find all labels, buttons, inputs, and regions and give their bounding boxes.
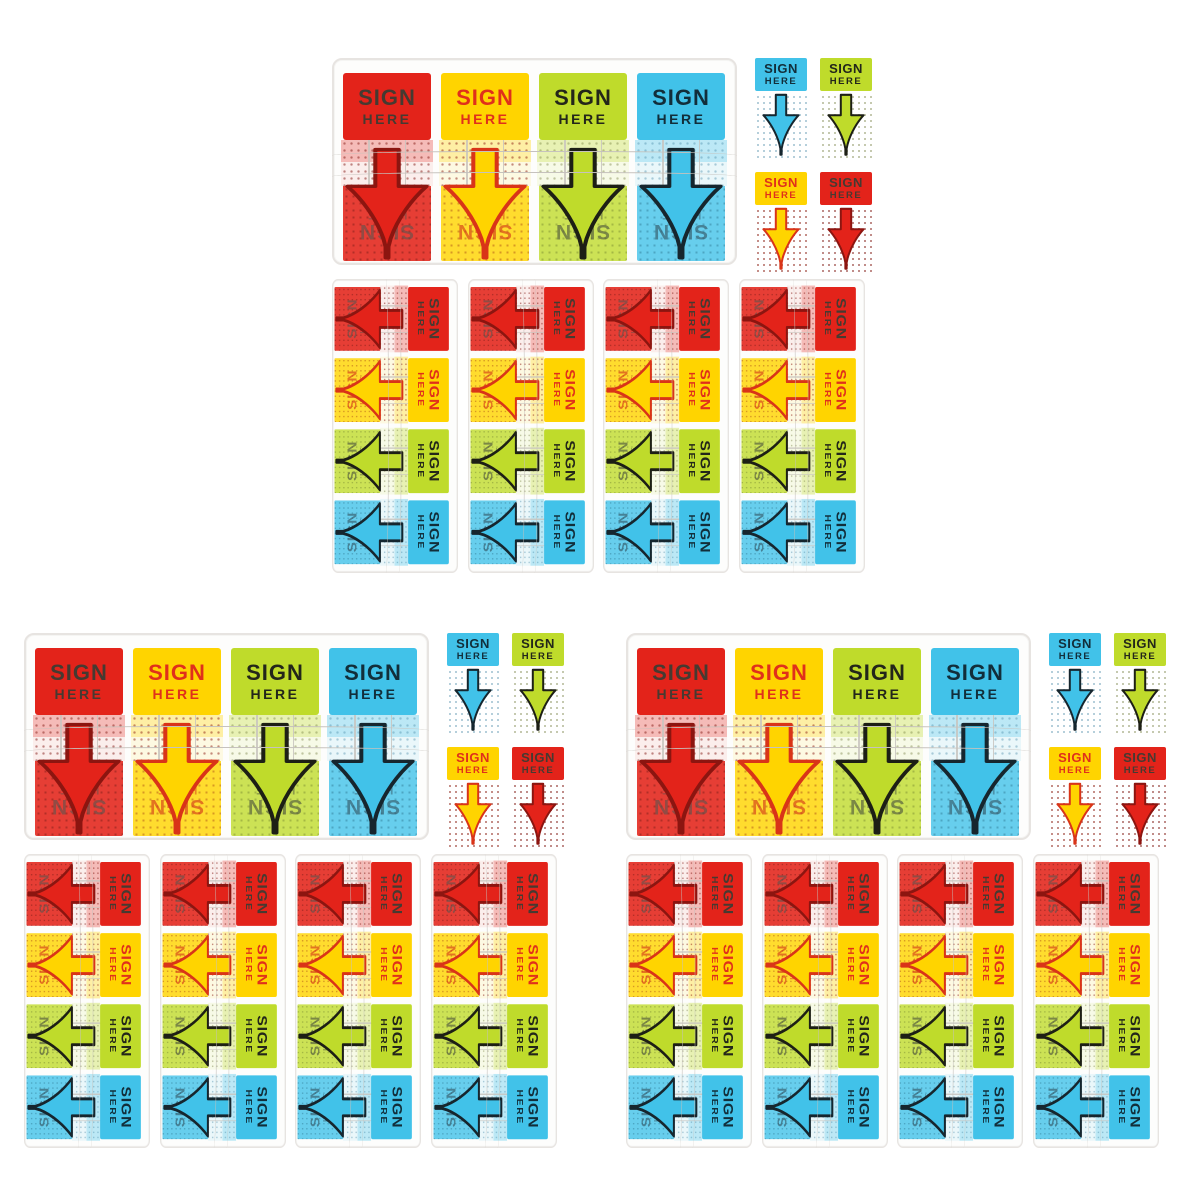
sign-here-tab: SIGN HERE SIGN HERE	[296, 861, 420, 928]
tab-label-line1: SIGN	[992, 873, 1005, 915]
sample-flag-adhesive	[1049, 783, 1101, 847]
arrow-down-icon	[471, 357, 539, 422]
tab-label-line1: SIGN	[563, 511, 576, 553]
rotated-dispenser: SIGN HERE SIGN HERE SIGN HERE SIGN HERE	[603, 279, 729, 573]
sign-here-tab: SIGN HERE SIGN HERE	[627, 861, 751, 928]
tab-head: SIGN HERE	[544, 429, 585, 493]
arrow-down-icon	[342, 148, 432, 260]
tab-label-line1: SIGN	[255, 944, 268, 986]
sample-flag: SIGN HERE	[755, 172, 807, 272]
tab-head: SIGN HERE	[408, 500, 449, 564]
flag-dispenser-tray: SIGN HERE SIGN HERE SIGN HERE SIGN HERE	[332, 58, 737, 265]
rotated-dispenser: SIGN HERE SIGN HERE SIGN HERE SIGN HERE	[24, 854, 150, 1148]
tab-label-line1: SIGN	[721, 1015, 734, 1057]
tab-label-line1: SIGN	[427, 511, 440, 553]
dispenser-area: SIGN HERE SIGN HERE SIGN HERE SIGN HERE	[24, 633, 429, 840]
tab-label-line2: HERE	[109, 1018, 118, 1054]
tab-head: SIGN HERE	[441, 73, 529, 140]
tab-label-line1: SIGN	[119, 1015, 132, 1057]
tab-head: SIGN HERE	[236, 1075, 277, 1139]
sample-flag-adhesive	[447, 783, 499, 847]
dispenser-tabs-row: SIGN HERE SIGN HERE SIGN HERE SIGN HERE	[341, 60, 727, 263]
strips-row: SIGN HERE SIGN HERE SIGN HERE SIGN HERE	[626, 854, 1164, 1148]
tab-head: SIGN HERE	[100, 862, 141, 926]
sign-here-tab: SIGN HERE SIGN HERE	[604, 428, 728, 495]
tab-label-line1: SIGN	[246, 662, 304, 684]
tab-label-line1: SIGN	[652, 662, 710, 684]
tab-head: SIGN HERE	[35, 648, 123, 715]
tab-head: SIGN HERE	[408, 358, 449, 422]
tab-label-line2: HERE	[1118, 947, 1127, 983]
tab-label-line1: SIGN	[992, 1015, 1005, 1057]
sign-here-tab: SIGN HERE SIGN HERE	[469, 428, 593, 495]
tab-head: SIGN HERE	[236, 933, 277, 997]
sign-here-tab: SIGN HERE SIGN HERE	[831, 635, 923, 838]
arrow-down-icon	[1120, 669, 1160, 731]
arrow-down-icon	[434, 1075, 502, 1140]
sample-flag-label-line2: HERE	[522, 652, 554, 662]
rotated-dispenser: SIGN HERE SIGN HERE SIGN HERE SIGN HERE	[897, 854, 1023, 1148]
tab-head: SIGN HERE	[637, 648, 725, 715]
flag-dispenser-tray: SIGN HERE SIGN HERE SIGN HERE SIGN HERE	[468, 279, 594, 573]
sample-flag-head: SIGN HERE	[820, 172, 872, 205]
tab-label-line2: HERE	[688, 372, 697, 408]
tab-label-line2: HERE	[516, 947, 525, 983]
tab-head: SIGN HERE	[544, 287, 585, 351]
sample-flag-head: SIGN HERE	[512, 747, 564, 780]
sign-here-tab: SIGN HERE SIGN HERE	[25, 932, 149, 999]
sample-flag-label-line2: HERE	[1059, 652, 1091, 662]
flag-dispenser-strip-rotated: SIGN HERE SIGN HERE SIGN HERE SIGN HERE	[626, 854, 752, 1148]
sample-flag: SIGN HERE	[512, 633, 564, 733]
arrow-down-icon	[761, 94, 801, 156]
arrow-down-icon	[826, 208, 866, 270]
tab-label-line2: HERE	[982, 1090, 991, 1126]
tab-label-line1: SIGN	[834, 298, 847, 340]
arrow-down-icon	[1036, 861, 1104, 926]
sample-flag-label-line1: SIGN	[1123, 751, 1157, 764]
tab-label-line1: SIGN	[721, 944, 734, 986]
sign-here-tab: SIGN HERE SIGN HERE	[25, 1074, 149, 1141]
dispenser-tabs-row: SIGN HERE SIGN HERE SIGN HERE SIGN HERE	[333, 286, 457, 566]
tab-label-line1: SIGN	[554, 87, 612, 109]
arrow-down-icon	[765, 932, 833, 997]
sign-here-tab: SIGN HERE SIGN HERE	[740, 428, 864, 495]
sample-flag-head: SIGN HERE	[1049, 633, 1101, 666]
tab-label-line2: HERE	[657, 687, 706, 701]
tab-head: SIGN HERE	[815, 500, 856, 564]
sample-flags-grid: SIGN HERE SIGN HERE SIGN HERE	[755, 53, 872, 269]
tab-label-line2: HERE	[951, 687, 1000, 701]
arrow-down-icon	[606, 286, 674, 351]
strips-row: SIGN HERE SIGN HERE SIGN HERE SIGN HERE	[332, 279, 870, 573]
tab-label-line2: HERE	[688, 443, 697, 479]
tab-label-line2: HERE	[417, 372, 426, 408]
sign-here-tab: SIGN HERE SIGN HERE	[333, 428, 457, 495]
tab-label-line2: HERE	[380, 1090, 389, 1126]
flag-dispenser-tray: SIGN HERE SIGN HERE SIGN HERE SIGN HERE	[603, 279, 729, 573]
tab-head: SIGN HERE	[371, 862, 412, 926]
arrow-down-icon	[538, 148, 628, 260]
tab-label-line1: SIGN	[526, 873, 539, 915]
dispenser-tabs-row: SIGN HERE SIGN HERE SIGN HERE SIGN HERE	[33, 635, 419, 838]
arrow-down-icon	[1036, 932, 1104, 997]
tab-head: SIGN HERE	[1109, 1004, 1150, 1068]
sample-flag-head: SIGN HERE	[1114, 633, 1166, 666]
arrow-down-icon	[453, 783, 493, 845]
sample-flag-label-line1: SIGN	[456, 751, 490, 764]
sign-here-tab: SIGN HERE SIGN HERE	[733, 635, 825, 838]
sample-flag-head: SIGN HERE	[512, 633, 564, 666]
tab-label-line1: SIGN	[1128, 1015, 1141, 1057]
sample-flag-adhesive	[1114, 669, 1166, 733]
arrow-down-icon	[1036, 1075, 1104, 1140]
tab-label-line2: HERE	[516, 876, 525, 912]
arrow-down-icon	[471, 500, 539, 565]
tab-head: SIGN HERE	[507, 1075, 548, 1139]
tab-head: SIGN HERE	[679, 287, 720, 351]
tab-label-line2: HERE	[847, 1018, 856, 1054]
tab-head: SIGN HERE	[931, 648, 1019, 715]
sample-flags-grid: SIGN HERE SIGN HERE SIGN HERE	[447, 628, 564, 844]
arrow-down-icon	[518, 783, 558, 845]
sample-flag-label-line1: SIGN	[521, 751, 555, 764]
rotated-dispenser: SIGN HERE SIGN HERE SIGN HERE SIGN HERE	[1033, 854, 1159, 1148]
arrow-down-icon	[163, 1075, 231, 1140]
tab-label-line1: SIGN	[344, 662, 402, 684]
tab-label-line2: HERE	[657, 112, 706, 126]
tab-label-line2: HERE	[245, 947, 254, 983]
tab-label-line1: SIGN	[834, 369, 847, 411]
dispenser-tabs-row: SIGN HERE SIGN HERE SIGN HERE SIGN HERE	[627, 861, 751, 1141]
sign-here-tab: SIGN HERE SIGN HERE	[898, 1074, 1022, 1141]
tab-label-line1: SIGN	[698, 298, 711, 340]
flag-dispenser-tray: SIGN HERE SIGN HERE SIGN HERE SIGN HERE	[626, 633, 1031, 840]
arrow-down-icon	[298, 861, 366, 926]
tab-label-line2: HERE	[417, 301, 426, 337]
tab-head: SIGN HERE	[371, 1075, 412, 1139]
tab-head: SIGN HERE	[702, 1075, 743, 1139]
tab-label-line2: HERE	[380, 947, 389, 983]
arrow-down-icon	[163, 861, 231, 926]
arrow-down-icon	[440, 148, 530, 260]
dispenser-tabs-row: SIGN HERE SIGN HERE SIGN HERE SIGN HERE	[161, 861, 285, 1141]
tab-head: SIGN HERE	[838, 1004, 879, 1068]
tab-label-line2: HERE	[755, 687, 804, 701]
arrow-down-icon	[335, 286, 403, 351]
sample-flag: SIGN HERE	[1114, 633, 1166, 733]
tab-label-line1: SIGN	[1128, 873, 1141, 915]
sample-flag-adhesive	[447, 669, 499, 733]
tab-label-line1: SIGN	[148, 662, 206, 684]
flag-dispenser-strip-rotated: SIGN HERE SIGN HERE SIGN HERE SIGN HERE	[762, 854, 888, 1148]
tab-label-line2: HERE	[1118, 876, 1127, 912]
sign-here-tab: SIGN HERE SIGN HERE	[432, 932, 556, 999]
tab-label-line1: SIGN	[563, 298, 576, 340]
tab-label-line1: SIGN	[834, 440, 847, 482]
sign-here-tab: SIGN HERE SIGN HERE	[627, 932, 751, 999]
sample-flag-head: SIGN HERE	[755, 58, 807, 91]
arrow-down-icon	[826, 94, 866, 156]
sign-here-tab: SIGN HERE SIGN HERE	[763, 1003, 887, 1070]
arrow-down-icon	[434, 1004, 502, 1069]
sign-here-tab: SIGN HERE SIGN HERE	[627, 1003, 751, 1070]
sample-flag-adhesive	[755, 94, 807, 158]
rotated-dispenser: SIGN HERE SIGN HERE SIGN HERE SIGN HERE	[160, 854, 286, 1148]
tab-label-line2: HERE	[982, 876, 991, 912]
tab-label-line1: SIGN	[698, 511, 711, 553]
dispenser-tabs-row: SIGN HERE SIGN HERE SIGN HERE SIGN HERE	[763, 861, 887, 1141]
sign-here-tab: SIGN HERE SIGN HERE	[740, 499, 864, 566]
tab-head: SIGN HERE	[1109, 933, 1150, 997]
tab-label-line2: HERE	[349, 687, 398, 701]
sample-flag-head: SIGN HERE	[1049, 747, 1101, 780]
flag-dispenser-strip-rotated: SIGN HERE SIGN HERE SIGN HERE SIGN HERE	[468, 279, 594, 573]
sign-here-tab: SIGN HERE SIGN HERE	[333, 357, 457, 424]
sign-here-tab: SIGN HERE SIGN HERE	[161, 1003, 285, 1070]
tab-head: SIGN HERE	[236, 862, 277, 926]
arrow-down-icon	[230, 723, 320, 835]
sign-here-tab: SIGN HERE SIGN HERE	[898, 932, 1022, 999]
tab-label-line1: SIGN	[563, 369, 576, 411]
arrow-down-icon	[298, 1075, 366, 1140]
tab-label-line1: SIGN	[857, 944, 870, 986]
dispenser-tabs-row: SIGN HERE SIGN HERE SIGN HERE SIGN HERE	[898, 861, 1022, 1141]
tab-label-line2: HERE	[461, 112, 510, 126]
flag-dispenser-tray: SIGN HERE SIGN HERE SIGN HERE SIGN HERE	[24, 633, 429, 840]
tab-label-line1: SIGN	[698, 440, 711, 482]
tab-label-line1: SIGN	[698, 369, 711, 411]
tab-head: SIGN HERE	[838, 1075, 879, 1139]
tab-head: SIGN HERE	[544, 500, 585, 564]
sample-flag-adhesive	[1049, 669, 1101, 733]
tab-head: SIGN HERE	[507, 862, 548, 926]
dispenser-tabs-row: SIGN HERE SIGN HERE SIGN HERE SIGN HERE	[469, 286, 593, 566]
rotated-dispenser: SIGN HERE SIGN HERE SIGN HERE SIGN HERE	[295, 854, 421, 1148]
tab-label-line2: HERE	[688, 301, 697, 337]
sign-here-tab: SIGN HERE SIGN HERE	[333, 499, 457, 566]
sample-flag-label-line2: HERE	[765, 191, 797, 201]
sample-flag-label-line2: HERE	[1124, 652, 1156, 662]
arrow-down-icon	[1055, 669, 1095, 731]
tab-label-line1: SIGN	[119, 1086, 132, 1128]
tab-label-line2: HERE	[1118, 1090, 1127, 1126]
tab-label-line2: HERE	[380, 1018, 389, 1054]
arrow-down-icon	[636, 148, 726, 260]
flag-dispenser-tray: SIGN HERE SIGN HERE SIGN HERE SIGN HERE	[626, 854, 752, 1148]
arrow-down-icon	[518, 669, 558, 731]
arrow-down-icon	[900, 932, 968, 997]
sign-here-tab: SIGN HERE SIGN HERE	[296, 932, 420, 999]
tab-head: SIGN HERE	[973, 862, 1014, 926]
tab-label-line2: HERE	[982, 947, 991, 983]
arrow-down-icon	[471, 286, 539, 351]
sign-here-tab: SIGN HERE SIGN HERE	[537, 60, 629, 263]
arrow-down-icon	[132, 723, 222, 835]
tab-head: SIGN HERE	[815, 287, 856, 351]
sign-here-tab: SIGN HERE SIGN HERE	[161, 1074, 285, 1141]
sign-here-tab: SIGN HERE SIGN HERE	[604, 499, 728, 566]
tab-label-line1: SIGN	[526, 944, 539, 986]
dispenser-tabs-row: SIGN HERE SIGN HERE SIGN HERE SIGN HERE	[635, 635, 1021, 838]
arrow-down-icon	[453, 669, 493, 731]
sample-flag: SIGN HERE	[820, 58, 872, 158]
tab-label-line1: SIGN	[992, 944, 1005, 986]
sign-here-tab: SIGN HERE SIGN HERE	[1034, 861, 1158, 928]
sample-flag: SIGN HERE	[820, 172, 872, 272]
sample-flag-label-line1: SIGN	[764, 62, 798, 75]
tab-head: SIGN HERE	[679, 358, 720, 422]
tab-label-line2: HERE	[245, 1090, 254, 1126]
tab-label-line1: SIGN	[526, 1015, 539, 1057]
flag-dispenser-tray: SIGN HERE SIGN HERE SIGN HERE SIGN HERE	[762, 854, 888, 1148]
tab-head: SIGN HERE	[544, 358, 585, 422]
tab-label-line2: HERE	[109, 1090, 118, 1126]
sign-here-tab: SIGN HERE SIGN HERE	[898, 1003, 1022, 1070]
tab-label-line1: SIGN	[946, 662, 1004, 684]
flag-dispenser-tray: SIGN HERE SIGN HERE SIGN HERE SIGN HERE	[739, 279, 865, 573]
tab-label-line1: SIGN	[255, 1015, 268, 1057]
sign-here-tab: SIGN HERE SIGN HERE	[327, 635, 419, 838]
dispenser-tabs-row: SIGN HERE SIGN HERE SIGN HERE SIGN HERE	[740, 286, 864, 566]
sample-flag-label-line2: HERE	[457, 652, 489, 662]
arrow-down-icon	[27, 861, 95, 926]
tab-label-line1: SIGN	[857, 1015, 870, 1057]
tab-label-line2: HERE	[553, 515, 562, 551]
sample-flag-label-line2: HERE	[522, 766, 554, 776]
tab-label-line2: HERE	[711, 876, 720, 912]
arrow-down-icon	[434, 861, 502, 926]
rotated-dispenser: SIGN HERE SIGN HERE SIGN HERE SIGN HERE	[739, 279, 865, 573]
tab-head: SIGN HERE	[679, 500, 720, 564]
sample-flag-adhesive	[755, 208, 807, 272]
tab-label-line1: SIGN	[427, 440, 440, 482]
tab-label-line1: SIGN	[390, 1015, 403, 1057]
sample-flags-grid: SIGN HERE SIGN HERE SIGN HERE	[1049, 628, 1166, 844]
tab-head: SIGN HERE	[679, 429, 720, 493]
arrow-down-icon	[900, 1004, 968, 1069]
arrow-down-icon	[765, 1004, 833, 1069]
tab-head: SIGN HERE	[371, 1004, 412, 1068]
sign-here-tab: SIGN HERE SIGN HERE	[439, 60, 531, 263]
sample-flag: SIGN HERE	[1049, 633, 1101, 733]
tab-label-line1: SIGN	[119, 944, 132, 986]
arrow-down-icon	[832, 723, 922, 835]
flag-dispenser-tray: SIGN HERE SIGN HERE SIGN HERE SIGN HERE	[1033, 854, 1159, 1148]
tab-label-line2: HERE	[853, 687, 902, 701]
flag-dispenser-tray: SIGN HERE SIGN HERE SIGN HERE SIGN HERE	[295, 854, 421, 1148]
tab-label-line2: HERE	[559, 112, 608, 126]
tab-head: SIGN HERE	[735, 648, 823, 715]
tab-label-line2: HERE	[109, 876, 118, 912]
sign-here-tab: SIGN HERE SIGN HERE	[1034, 932, 1158, 999]
dispenser-tabs-row: SIGN HERE SIGN HERE SIGN HERE SIGN HERE	[25, 861, 149, 1141]
sample-flag-label-line1: SIGN	[1058, 751, 1092, 764]
sign-here-tab: SIGN HERE SIGN HERE	[296, 1074, 420, 1141]
tab-label-line1: SIGN	[390, 944, 403, 986]
arrow-down-icon	[629, 1004, 697, 1069]
sign-here-tab: SIGN HERE SIGN HERE	[161, 861, 285, 928]
tab-head: SIGN HERE	[637, 73, 725, 140]
arrow-down-icon	[163, 1004, 231, 1069]
tab-label-line2: HERE	[245, 876, 254, 912]
arrow-down-icon	[1120, 783, 1160, 845]
sample-flag-label-line1: SIGN	[521, 637, 555, 650]
sample-flag-label-line2: HERE	[1059, 766, 1091, 776]
flag-product-set-top: SIGN HERE SIGN HERE SIGN HERE SIGN HERE	[332, 53, 872, 575]
sample-flag-adhesive	[512, 669, 564, 733]
flag-dispenser-tray: SIGN HERE SIGN HERE SIGN HERE SIGN HERE	[332, 279, 458, 573]
tab-label-line1: SIGN	[848, 662, 906, 684]
arrow-down-icon	[1036, 1004, 1104, 1069]
tab-head: SIGN HERE	[371, 933, 412, 997]
arrow-down-icon	[434, 932, 502, 997]
tab-head: SIGN HERE	[343, 73, 431, 140]
arrow-down-icon	[629, 1075, 697, 1140]
tab-label-line2: HERE	[824, 372, 833, 408]
tab-label-line2: HERE	[363, 112, 412, 126]
flag-dispenser-strip-rotated: SIGN HERE SIGN HERE SIGN HERE SIGN HERE	[295, 854, 421, 1148]
tab-label-line2: HERE	[417, 443, 426, 479]
sample-flag-adhesive	[512, 783, 564, 847]
tab-label-line2: HERE	[847, 1090, 856, 1126]
arrow-down-icon	[765, 1075, 833, 1140]
arrow-down-icon	[335, 429, 403, 494]
tab-head: SIGN HERE	[973, 933, 1014, 997]
flag-dispenser-strip-rotated: SIGN HERE SIGN HERE SIGN HERE SIGN HERE	[1033, 854, 1159, 1148]
tab-head: SIGN HERE	[329, 648, 417, 715]
sample-flag-adhesive	[1114, 783, 1166, 847]
tab-label-line2: HERE	[711, 1018, 720, 1054]
rotated-dispenser: SIGN HERE SIGN HERE SIGN HERE SIGN HERE	[332, 279, 458, 573]
flag-dispenser-strip-rotated: SIGN HERE SIGN HERE SIGN HERE SIGN HERE	[431, 854, 557, 1148]
tab-label-line2: HERE	[153, 687, 202, 701]
tab-label-line2: HERE	[824, 301, 833, 337]
sign-here-tab: SIGN HERE SIGN HERE	[229, 635, 321, 838]
flag-dispenser-strip-rotated: SIGN HERE SIGN HERE SIGN HERE SIGN HERE	[739, 279, 865, 573]
tab-label-line2: HERE	[417, 515, 426, 551]
sign-here-tab: SIGN HERE SIGN HERE	[432, 1074, 556, 1141]
sample-flag-label-line1: SIGN	[829, 62, 863, 75]
dispenser-area: SIGN HERE SIGN HERE SIGN HERE SIGN HERE	[626, 633, 1031, 840]
sign-here-tab: SIGN HERE SIGN HERE	[763, 861, 887, 928]
arrow-down-icon	[471, 429, 539, 494]
flag-dispenser-strip-rotated: SIGN HERE SIGN HERE SIGN HERE SIGN HERE	[603, 279, 729, 573]
flag-dispenser-tray: SIGN HERE SIGN HERE SIGN HERE SIGN HERE	[431, 854, 557, 1148]
tab-label-line1: SIGN	[652, 87, 710, 109]
sign-here-tab: SIGN HERE SIGN HERE	[604, 286, 728, 353]
sample-flag: SIGN HERE	[447, 633, 499, 733]
sample-flag-adhesive	[820, 208, 872, 272]
tab-label-line1: SIGN	[834, 511, 847, 553]
arrow-down-icon	[27, 932, 95, 997]
tab-head: SIGN HERE	[231, 648, 319, 715]
tab-head: SIGN HERE	[100, 933, 141, 997]
dispenser-tabs-row: SIGN HERE SIGN HERE SIGN HERE SIGN HERE	[296, 861, 420, 1141]
tab-label-line2: HERE	[553, 372, 562, 408]
dispenser-tabs-row: SIGN HERE SIGN HERE SIGN HERE SIGN HERE	[604, 286, 728, 566]
tab-head: SIGN HERE	[973, 1075, 1014, 1139]
tab-head: SIGN HERE	[539, 73, 627, 140]
sign-here-tab: SIGN HERE SIGN HERE	[296, 1003, 420, 1070]
flag-dispenser-strip-rotated: SIGN HERE SIGN HERE SIGN HERE SIGN HERE	[897, 854, 1023, 1148]
tab-label-line1: SIGN	[358, 87, 416, 109]
dispenser-tabs-row: SIGN HERE SIGN HERE SIGN HERE SIGN HERE	[432, 861, 556, 1141]
tab-label-line1: SIGN	[119, 873, 132, 915]
arrow-down-icon	[742, 429, 810, 494]
sample-flag-label-line1: SIGN	[829, 176, 863, 189]
sign-here-tab: SIGN HERE SIGN HERE	[469, 286, 593, 353]
